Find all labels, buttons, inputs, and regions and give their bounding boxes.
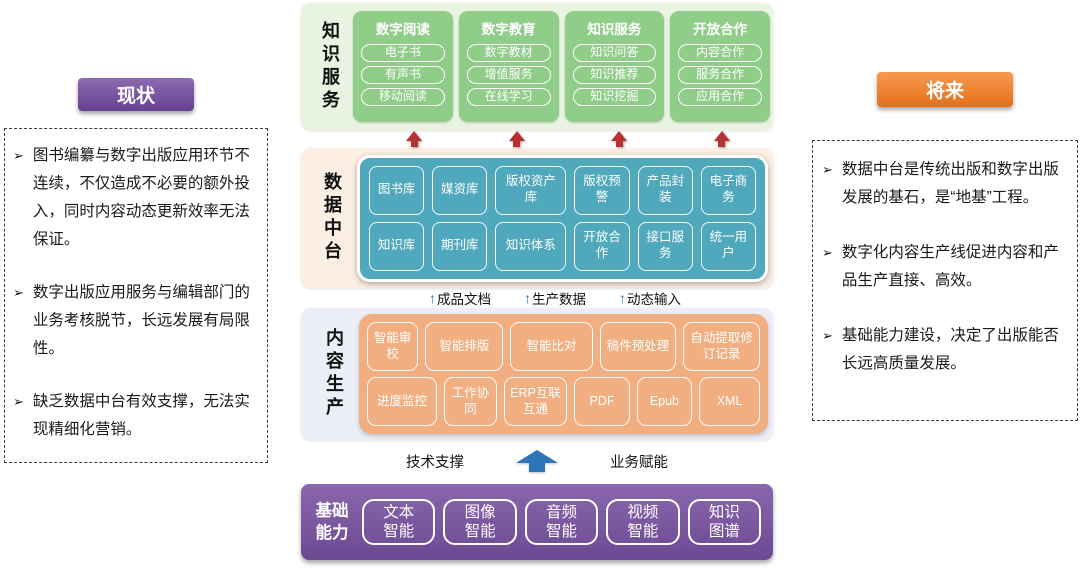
capability-pill: 视频智能 (606, 499, 679, 545)
service-item-pill: 数字教材 (467, 44, 551, 62)
data-module-cell: 产品封装 (638, 166, 693, 215)
arrow-bullet-icon: ➢ (822, 156, 833, 212)
service-card-title: 数字阅读 (359, 18, 447, 38)
red-arrow-cell (466, 130, 569, 148)
data-module-cell: 电子商务 (701, 166, 756, 215)
capability-pill: 图像智能 (443, 499, 516, 545)
current-status-box: ➢图书编纂与数字出版应用环节不连续，不仅造成不必要的额外投入，同时内容动态更新效… (4, 128, 268, 463)
data-module-cell: 版权预警 (574, 166, 629, 215)
service-item-pill: 知识问答 (573, 44, 657, 62)
production-module-cell: 自动提取修订记录 (683, 322, 760, 371)
base-capability-layer: 基础能力 文本智能图像智能音频智能视频智能知识图谱 (301, 484, 773, 560)
blue-up-arrow-icon: ↑ (524, 290, 531, 306)
flow-label: ↑成品文档 (429, 288, 491, 308)
content-production-layer: 内容生产 智能审校智能排版智能比对稿件预处理自动提取修订记录 进度监控工作协同E… (301, 308, 773, 440)
red-up-arrow-icon (406, 131, 422, 147)
data-platform-layer: 数据中台 图书库媒资库版权资产库版权预警产品封装电子商务 知识库期刊库知识体系开… (301, 148, 773, 288)
service-item-pill: 知识挖掘 (573, 88, 657, 106)
arrow-bullet-icon: ➢ (822, 322, 833, 378)
base-capability-pills: 文本智能图像智能音频智能视频智能知识图谱 (362, 499, 761, 545)
bullet-item: ➢数字出版应用服务与编辑部门的业务考核脱节，长远发展有局限性。 (13, 279, 259, 363)
capability-pill-text: 文本智能 (382, 503, 415, 542)
content-production-label: 内容生产 (321, 328, 347, 420)
content-production-box: 智能审校智能排版智能比对稿件预处理自动提取修订记录 进度监控工作协同ERP互联互… (359, 314, 768, 434)
flow-label: ↑生产数据 (524, 288, 586, 308)
service-card-title: 知识服务 (571, 18, 659, 38)
content-production-row2: 进度监控工作协同ERP互联互通PDFEpubXML (367, 377, 760, 426)
red-arrow-cell (363, 130, 466, 148)
service-card: 数字教育数字教材增值服务在线学习 (459, 11, 559, 122)
bullet-item: ➢图书编纂与数字出版应用环节不连续，不仅造成不必要的额外投入，同时内容动态更新效… (13, 142, 259, 254)
data-module-cell: 知识库 (369, 222, 424, 271)
production-module-cell: 进度监控 (367, 377, 437, 426)
data-module-cell: 统一用户 (701, 222, 756, 271)
arrow-bullet-icon: ➢ (822, 239, 833, 295)
service-card: 开放合作内容合作服务合作应用合作 (670, 11, 770, 122)
capability-pill: 知识图谱 (688, 499, 761, 545)
data-module-cell: 知识体系 (495, 222, 566, 271)
bullet-text: 数字出版应用服务与编辑部门的业务考核脱节，长远发展有局限性。 (33, 279, 259, 363)
red-up-arrow-icon (714, 131, 730, 147)
capability-pill-text: 图像智能 (463, 503, 496, 542)
production-module-cell: PDF (574, 377, 629, 426)
service-card-title: 开放合作 (676, 18, 764, 38)
service-item-pill: 在线学习 (467, 88, 551, 106)
red-arrow-cell (671, 130, 774, 148)
production-module-cell: 工作协同 (444, 377, 497, 426)
capability-pill-text: 视频智能 (626, 503, 659, 542)
arrow-bullet-icon: ➢ (13, 142, 24, 254)
data-flow-labels: ↑成品文档↑生产数据↑动态输入 (301, 288, 773, 308)
knowledge-service-layer: 知识服务 数字阅读电子书有声书移动阅读数字教育数字教材增值服务在线学习知识服务知… (301, 3, 773, 130)
capability-pill-text: 音频智能 (545, 503, 578, 542)
content-production-row1: 智能审校智能排版智能比对稿件预处理自动提取修订记录 (367, 322, 760, 371)
production-module-cell: XML (699, 377, 760, 426)
flow-label-text: 动态输入 (627, 288, 681, 308)
future-header: 将来 (877, 72, 1013, 107)
service-item-pill: 移动阅读 (361, 88, 445, 106)
bullet-item: ➢数字化内容生产线促进内容和产品生产直接、高效。 (822, 239, 1068, 295)
bullet-text: 图书编纂与数字出版应用环节不连续，不仅造成不必要的额外投入，同时内容动态更新效率… (33, 142, 259, 254)
support-enable-row: 技术支撑 业务赋能 (301, 440, 773, 482)
service-item-pill: 增值服务 (467, 66, 551, 84)
data-module-cell: 图书库 (369, 166, 424, 215)
tech-support-label: 技术支撑 (406, 451, 464, 472)
service-item-pill: 知识推荐 (573, 66, 657, 84)
bullet-text: 缺乏数据中台有效支撑，无法实现精细化营销。 (33, 388, 259, 444)
red-arrow-cell (568, 130, 671, 148)
bullet-text: 数字化内容生产线促进内容和产品生产直接、高效。 (842, 239, 1068, 295)
production-module-cell: 稿件预处理 (600, 322, 677, 371)
data-module-cell: 开放合作 (574, 222, 629, 271)
production-module-cell: 智能排版 (425, 322, 503, 371)
knowledge-service-cards: 数字阅读电子书有声书移动阅读数字教育数字教材增值服务在线学习知识服务知识问答知识… (353, 11, 770, 122)
bullet-text: 基础能力建设，决定了出版能否长远高质量发展。 (842, 322, 1068, 378)
data-module-cell: 版权资产库 (495, 166, 566, 215)
production-module-cell: ERP互联互通 (504, 377, 568, 426)
blue-up-arrow-icon: ↑ (619, 290, 626, 306)
service-item-pill: 服务合作 (678, 66, 762, 84)
knowledge-service-label: 知识服务 (317, 21, 343, 113)
future-list: ➢数据中台是传统出版和数字出版发展的基石，是“地基”工程。➢数字化内容生产线促进… (822, 156, 1068, 378)
current-status-list: ➢图书编纂与数字出版应用环节不连续，不仅造成不必要的额外投入，同时内容动态更新效… (13, 142, 259, 444)
publishing-architecture-diagram: 现状 ➢图书编纂与数字出版应用环节不连续，不仅造成不必要的额外投入，同时内容动态… (0, 0, 1080, 568)
production-module-cell: 智能审校 (367, 322, 418, 371)
blue-up-arrow-icon: ↑ (429, 290, 436, 306)
bullet-text: 数据中台是传统出版和数字出版发展的基石，是“地基”工程。 (842, 156, 1068, 212)
future-panel: 将来 ➢数据中台是传统出版和数字出版发展的基石，是“地基”工程。➢数字化内容生产… (812, 72, 1078, 421)
service-card: 数字阅读电子书有声书移动阅读 (353, 11, 453, 122)
current-status-header: 现状 (78, 78, 194, 111)
service-card: 知识服务知识问答知识推荐知识挖掘 (565, 11, 665, 122)
data-module-cell: 媒资库 (432, 166, 487, 215)
capability-pill: 音频智能 (525, 499, 598, 545)
flow-label-text: 生产数据 (532, 288, 586, 308)
service-item-pill: 内容合作 (678, 44, 762, 62)
arrow-bullet-icon: ➢ (13, 388, 24, 444)
data-platform-box: 图书库媒资库版权资产库版权预警产品封装电子商务 知识库期刊库知识体系开放合作接口… (357, 155, 768, 282)
red-up-arrow-icon (611, 131, 627, 147)
bullet-item: ➢数据中台是传统出版和数字出版发展的基石，是“地基”工程。 (822, 156, 1068, 212)
service-item-pill: 有声书 (361, 66, 445, 84)
service-item-pill: 应用合作 (678, 88, 762, 106)
data-module-cell: 接口服务 (638, 222, 693, 271)
data-platform-row2: 知识库期刊库知识体系开放合作接口服务统一用户 (369, 222, 756, 271)
arrow-bullet-icon: ➢ (13, 279, 24, 363)
architecture-stack: 知识服务 数字阅读电子书有声书移动阅读数字教育数字教材增值服务在线学习知识服务知… (301, 3, 773, 560)
up-arrow-icon (516, 450, 558, 472)
upward-flow-arrows (301, 130, 773, 148)
base-capability-label: 基础能力 (313, 500, 351, 545)
service-item-pill: 电子书 (361, 44, 445, 62)
current-status-panel: 现状 ➢图书编纂与数字出版应用环节不连续，不仅造成不必要的额外投入，同时内容动态… (4, 78, 268, 463)
data-platform-label: 数据中台 (319, 172, 345, 264)
service-card-title: 数字教育 (465, 18, 553, 38)
red-up-arrow-icon (509, 131, 525, 147)
bullet-item: ➢基础能力建设，决定了出版能否长远高质量发展。 (822, 322, 1068, 378)
future-box: ➢数据中台是传统出版和数字出版发展的基石，是“地基”工程。➢数字化内容生产线促进… (812, 140, 1078, 421)
production-module-cell: 智能比对 (510, 322, 592, 371)
data-module-cell: 期刊库 (432, 222, 487, 271)
flow-label-text: 成品文档 (437, 288, 491, 308)
capability-pill: 文本智能 (362, 499, 435, 545)
flow-label: ↑动态输入 (619, 288, 681, 308)
bullet-item: ➢缺乏数据中台有效支撑，无法实现精细化营销。 (13, 388, 259, 444)
business-enable-label: 业务赋能 (610, 451, 668, 472)
production-module-cell: Epub (637, 377, 692, 426)
data-platform-row1: 图书库媒资库版权资产库版权预警产品封装电子商务 (369, 166, 756, 215)
capability-pill-text: 知识图谱 (708, 503, 741, 542)
